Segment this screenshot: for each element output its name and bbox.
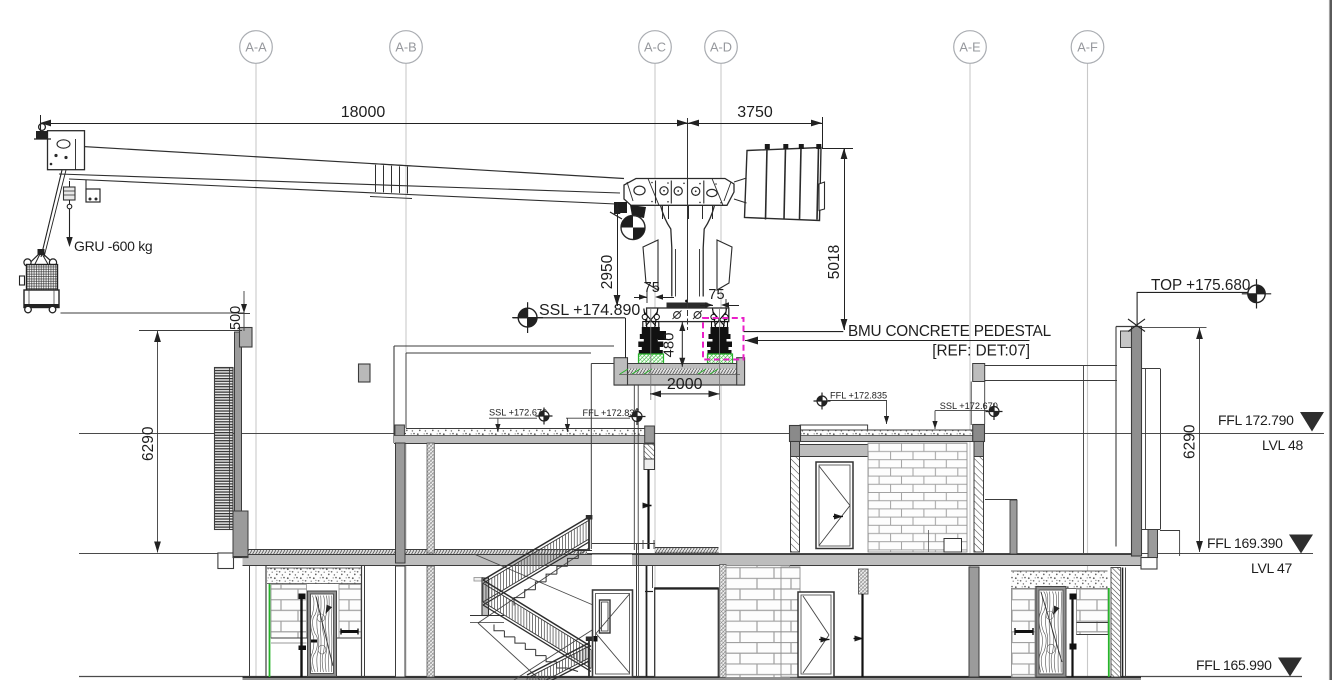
svg-text:FFL 169.390: FFL 169.390: [1207, 535, 1283, 551]
svg-text:3750: 3750: [737, 104, 773, 121]
svg-text:FFL +172.835: FFL +172.835: [830, 391, 887, 401]
svg-text:75: 75: [708, 287, 724, 303]
svg-text:A-E: A-E: [959, 40, 980, 55]
svg-text:500: 500: [228, 306, 244, 330]
svg-text:TOP +175.680: TOP +175.680: [1151, 277, 1250, 294]
svg-text:A-C: A-C: [644, 40, 666, 55]
svg-text:18000: 18000: [341, 104, 386, 121]
svg-text:LVL 48: LVL 48: [1262, 437, 1304, 453]
svg-text:FFL 172.790: FFL 172.790: [1218, 412, 1294, 428]
svg-text:A-D: A-D: [710, 40, 732, 55]
svg-text:A-B: A-B: [395, 40, 416, 55]
svg-text:GRU -600 kg: GRU -600 kg: [74, 238, 152, 254]
svg-text:2000: 2000: [667, 376, 703, 393]
svg-text:2950: 2950: [599, 254, 616, 289]
svg-text:FFL 165.990: FFL 165.990: [1196, 657, 1272, 673]
svg-text:[REF: DET:07]: [REF: DET:07]: [932, 343, 1030, 360]
svg-text:5018: 5018: [826, 245, 843, 279]
svg-text:A-F: A-F: [1077, 40, 1098, 55]
svg-text:75: 75: [644, 280, 660, 296]
svg-text:6290: 6290: [1182, 424, 1199, 459]
svg-text:SSL +174.890: SSL +174.890: [539, 302, 640, 319]
svg-text:A-A: A-A: [245, 40, 267, 55]
svg-text:BMU CONCRETE PEDESTAL: BMU CONCRETE PEDESTAL: [848, 323, 1051, 340]
svg-text:480: 480: [661, 332, 678, 357]
svg-text:6290: 6290: [140, 426, 157, 461]
svg-text:LVL 47: LVL 47: [1251, 560, 1293, 576]
